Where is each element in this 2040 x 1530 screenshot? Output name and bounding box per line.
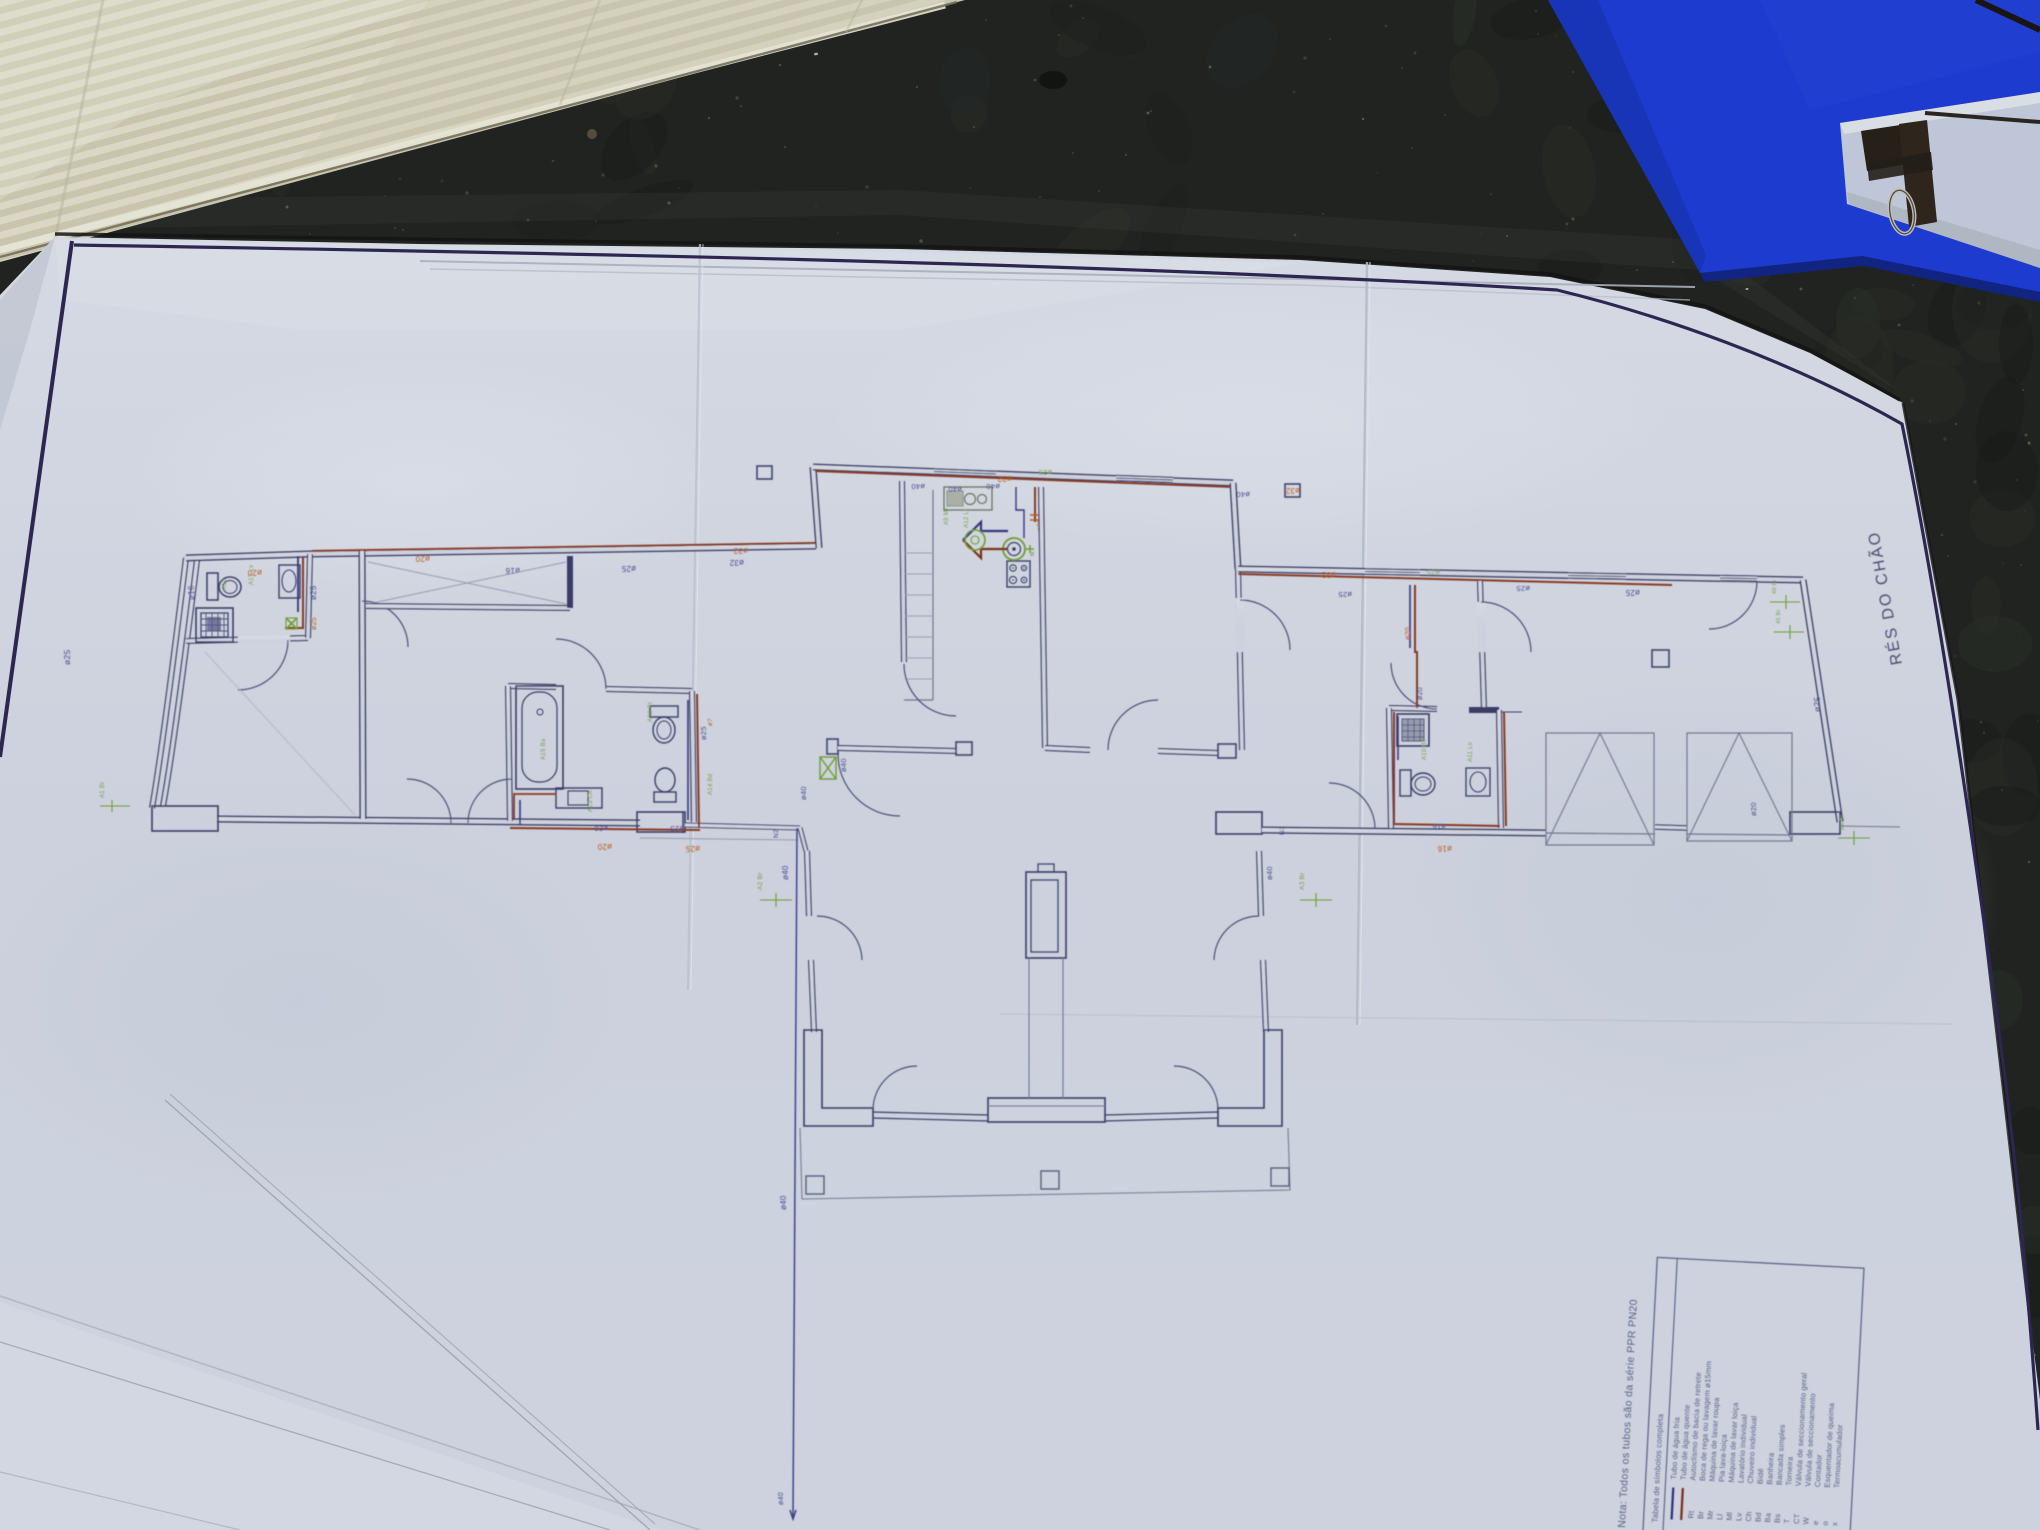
- svg-text:ø25: ø25: [1338, 590, 1352, 599]
- svg-text:A9 Ml: A9 Ml: [944, 508, 950, 525]
- svg-text:ø16: ø16: [187, 585, 196, 600]
- svg-text:ø16: ø16: [1437, 844, 1452, 853]
- svg-text:Bidé: Bidé: [1755, 1468, 1765, 1484]
- svg-text:A16: A16: [222, 578, 228, 590]
- svg-text:A12 Ll: A12 Ll: [964, 509, 970, 528]
- svg-text:ø20: ø20: [1417, 687, 1424, 700]
- svg-text:A15 Ba: A15 Ba: [541, 738, 547, 760]
- svg-text:Lv: Lv: [1734, 1512, 1743, 1521]
- svg-text:Ch: Ch: [1744, 1511, 1754, 1522]
- svg-text:A13 Ch: A13 Ch: [588, 790, 594, 812]
- svg-text:T: T: [1782, 1518, 1791, 1523]
- svg-text:Bs: Bs: [1773, 1514, 1782, 1524]
- svg-text:o: o: [1821, 1521, 1830, 1526]
- svg-text:ø20: ø20: [597, 842, 612, 851]
- svg-text:e: e: [1811, 1520, 1820, 1525]
- svg-text:A3 Br: A3 Br: [1299, 872, 1306, 890]
- svg-text:ø40: ø40: [839, 758, 848, 772]
- svg-text:ø25: ø25: [621, 564, 636, 573]
- svg-text:ø20: ø20: [1405, 627, 1412, 640]
- svg-text:Mr: Mr: [1706, 1510, 1715, 1520]
- svg-text:ø40: ø40: [799, 786, 808, 800]
- svg-text:A13 Rt: A13 Rt: [648, 702, 654, 722]
- svg-text:Ll: Ll: [1715, 1513, 1724, 1520]
- svg-text:ø25: ø25: [311, 617, 318, 630]
- svg-text:ø32: ø32: [733, 546, 748, 555]
- svg-text:A4 Br: A4 Br: [1840, 815, 1846, 830]
- svg-text:ø40: ø40: [778, 1492, 785, 1505]
- svg-text:ø32: ø32: [1321, 570, 1336, 579]
- svg-text:ø40: ø40: [911, 482, 925, 491]
- svg-text:ø20: ø20: [594, 824, 608, 833]
- svg-text:W: W: [1801, 1516, 1810, 1524]
- svg-text:ø40: ø40: [779, 1195, 788, 1210]
- svg-text:A11 Lv: A11 Lv: [1468, 742, 1474, 762]
- svg-text:N2: N2: [773, 829, 780, 838]
- svg-text:Bd: Bd: [1753, 1512, 1762, 1522]
- svg-text:Ba: Ba: [1763, 1512, 1773, 1523]
- svg-text:ø25: ø25: [1516, 584, 1530, 593]
- svg-text:A2 Br: A2 Br: [757, 872, 764, 890]
- svg-text:ø25: ø25: [62, 649, 72, 665]
- svg-text:ø40: ø40: [781, 865, 790, 880]
- svg-text:ø: ø: [1030, 551, 1035, 558]
- svg-text:ø40: ø40: [1236, 490, 1250, 499]
- svg-text:ø25: ø25: [685, 844, 700, 853]
- svg-text:Ml: Ml: [1725, 1512, 1734, 1521]
- svg-text:ø25: ø25: [1426, 568, 1440, 577]
- svg-text:ø32: ø32: [1285, 486, 1300, 495]
- svg-text:40 Br: 40 Br: [1772, 579, 1778, 594]
- svg-text:ø25: ø25: [1812, 696, 1822, 712]
- svg-text:A17 Lv: A17 Lv: [249, 565, 255, 585]
- svg-text:ø25: ø25: [1038, 468, 1052, 477]
- svg-text:ø?: ø?: [708, 718, 714, 726]
- svg-text:ø20: ø20: [415, 554, 430, 563]
- svg-text:A10 Rt: A10 Rt: [1422, 740, 1428, 760]
- svg-text:Br: Br: [1696, 1511, 1705, 1520]
- svg-text:Rt: Rt: [1686, 1510, 1695, 1519]
- svg-text:CT: CT: [1792, 1513, 1802, 1524]
- svg-text:A14 Bd: A14 Bd: [708, 774, 714, 795]
- svg-text:N3: N3: [1279, 826, 1286, 835]
- svg-text:ø20: ø20: [1749, 802, 1758, 816]
- svg-text:ø40: ø40: [1265, 866, 1274, 880]
- svg-text:ø32: ø32: [729, 558, 744, 567]
- svg-text:ø25: ø25: [1625, 588, 1640, 597]
- svg-text:ø25: ø25: [699, 726, 708, 740]
- svg-text:45 Br: 45 Br: [1776, 609, 1782, 624]
- svg-text:A1 Br: A1 Br: [100, 781, 106, 798]
- svg-text:ø25: ø25: [670, 824, 684, 833]
- svg-text:ø16: ø16: [1432, 822, 1446, 831]
- svg-text:ø25: ø25: [309, 585, 318, 600]
- svg-text:x: x: [1830, 1522, 1839, 1526]
- svg-text:ø40: ø40: [948, 485, 962, 494]
- svg-text:ø32: ø32: [997, 474, 1012, 483]
